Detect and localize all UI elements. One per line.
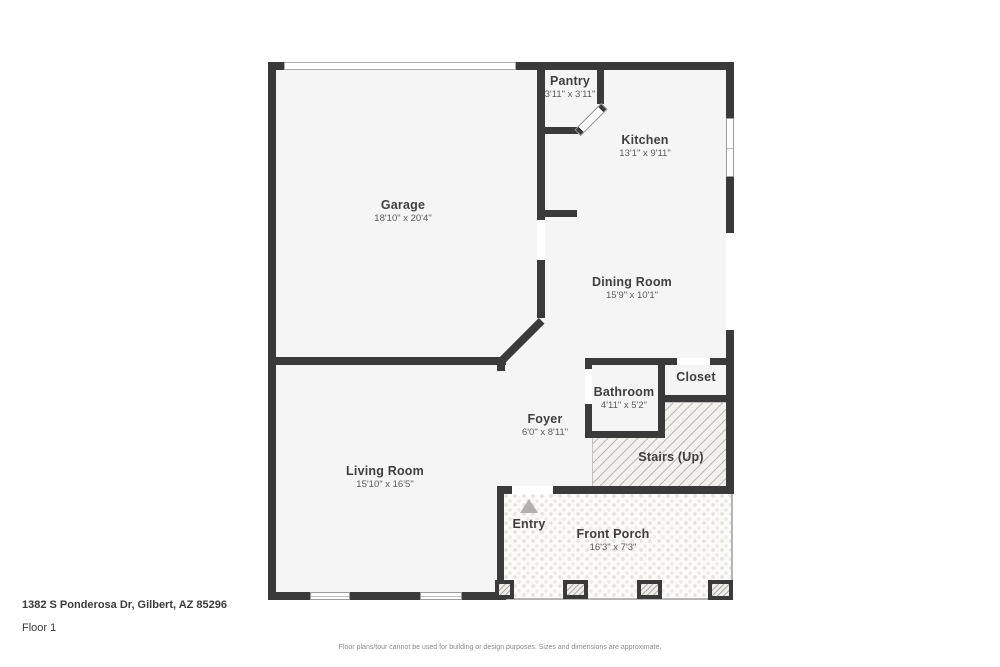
room-name: Living Room bbox=[346, 464, 424, 478]
room-label-living-room: Living Room 15'10" x 16'5" bbox=[346, 464, 424, 492]
entry-door-opening bbox=[512, 486, 553, 494]
room-name: Garage bbox=[374, 198, 431, 212]
room-dims: 13'1" x 9'11" bbox=[619, 147, 670, 160]
wall-right-mid bbox=[726, 177, 734, 233]
bathroom-door-opening bbox=[585, 369, 592, 404]
porch-pillar-4 bbox=[708, 580, 733, 600]
wall-top-main bbox=[514, 62, 734, 70]
room-name: Pantry bbox=[545, 74, 596, 88]
wall-bathroom-bottom bbox=[585, 431, 665, 438]
room-label-garage: Garage 18'10" x 20'4" bbox=[374, 198, 431, 226]
wall-closet-top bbox=[710, 358, 734, 365]
living-room-window-2 bbox=[420, 592, 462, 600]
room-label-kitchen: Kitchen 13'1" x 9'11" bbox=[619, 133, 670, 161]
kitchen-window bbox=[726, 118, 734, 177]
room-name: Front Porch bbox=[576, 527, 649, 541]
room-dims: 6'0" x 8'11" bbox=[522, 426, 568, 439]
room-label-foyer: Foyer 6'0" x 8'11" bbox=[522, 412, 568, 440]
room-name: Dining Room bbox=[592, 275, 672, 289]
wall-kitchen-stub bbox=[537, 210, 577, 217]
room-label-bathroom: Bathroom 4'11" x 5'2" bbox=[594, 385, 655, 413]
wall-left bbox=[268, 62, 276, 600]
pillar-core bbox=[641, 584, 658, 595]
entry-direction-arrow-icon bbox=[520, 499, 538, 513]
wall-right-upper bbox=[726, 62, 734, 118]
disclaimer-text: Floor plans/tour cannot be used for buil… bbox=[339, 644, 662, 651]
room-name: Stairs (Up) bbox=[638, 450, 703, 464]
closet-door-opening bbox=[677, 358, 710, 365]
wall-porch-left bbox=[497, 486, 504, 584]
room-label-dining-room: Dining Room 15'9" x 10'1" bbox=[592, 275, 672, 303]
room-name: Bathroom bbox=[594, 385, 655, 399]
room-dims: 15'9" x 10'1" bbox=[592, 289, 672, 302]
room-label-front-porch: Front Porch 16'3" x 7'3" bbox=[576, 527, 649, 555]
wall-right-lower bbox=[726, 330, 734, 494]
room-label-entry: Entry bbox=[513, 517, 546, 531]
property-address: 1382 S Ponderosa Dr, Gilbert, AZ 85296 bbox=[22, 599, 227, 611]
room-dims: 4'11" x 5'2" bbox=[594, 399, 655, 412]
floor-plan: Garage 18'10" x 20'4" Pantry 3'11" x 3'1… bbox=[0, 0, 1000, 667]
room-name: Kitchen bbox=[619, 133, 670, 147]
room-label-closet: Closet bbox=[676, 370, 715, 384]
room-dims: 18'10" x 20'4" bbox=[374, 212, 431, 225]
pillar-core bbox=[712, 584, 729, 596]
wall-garage-right-lower bbox=[537, 260, 545, 318]
wall-closet-bottom bbox=[658, 395, 734, 402]
dining-room-opening bbox=[726, 233, 734, 330]
garage-door-opening bbox=[284, 62, 516, 70]
wall-stairs-bottom bbox=[553, 486, 734, 494]
room-dims: 16'3" x 7'3" bbox=[576, 541, 649, 554]
wall-bathroom-left-a bbox=[585, 358, 592, 369]
room-name: Entry bbox=[513, 517, 546, 531]
garage-door-to-house bbox=[537, 220, 545, 260]
floor-label: Floor 1 bbox=[22, 622, 56, 634]
wall-bottom-living bbox=[268, 592, 506, 600]
pillar-core bbox=[567, 584, 584, 595]
room-dims: 15'10" x 16'5" bbox=[346, 478, 424, 491]
room-dims: 3'11" x 3'11" bbox=[545, 88, 596, 101]
room-label-pantry: Pantry 3'11" x 3'11" bbox=[545, 74, 596, 102]
wall-pantry-bottom bbox=[537, 127, 578, 134]
porch-pillar-1 bbox=[495, 580, 514, 599]
living-room-window-1 bbox=[310, 592, 350, 600]
pillar-core bbox=[499, 584, 510, 595]
room-name: Foyer bbox=[522, 412, 568, 426]
room-label-stairs: Stairs (Up) bbox=[638, 450, 703, 464]
room-name: Closet bbox=[676, 370, 715, 384]
porch-pillar-2 bbox=[563, 580, 588, 599]
porch-pillar-3 bbox=[637, 580, 662, 599]
wall-garage-bottom bbox=[268, 357, 506, 365]
wall-pantry-right bbox=[597, 62, 604, 104]
